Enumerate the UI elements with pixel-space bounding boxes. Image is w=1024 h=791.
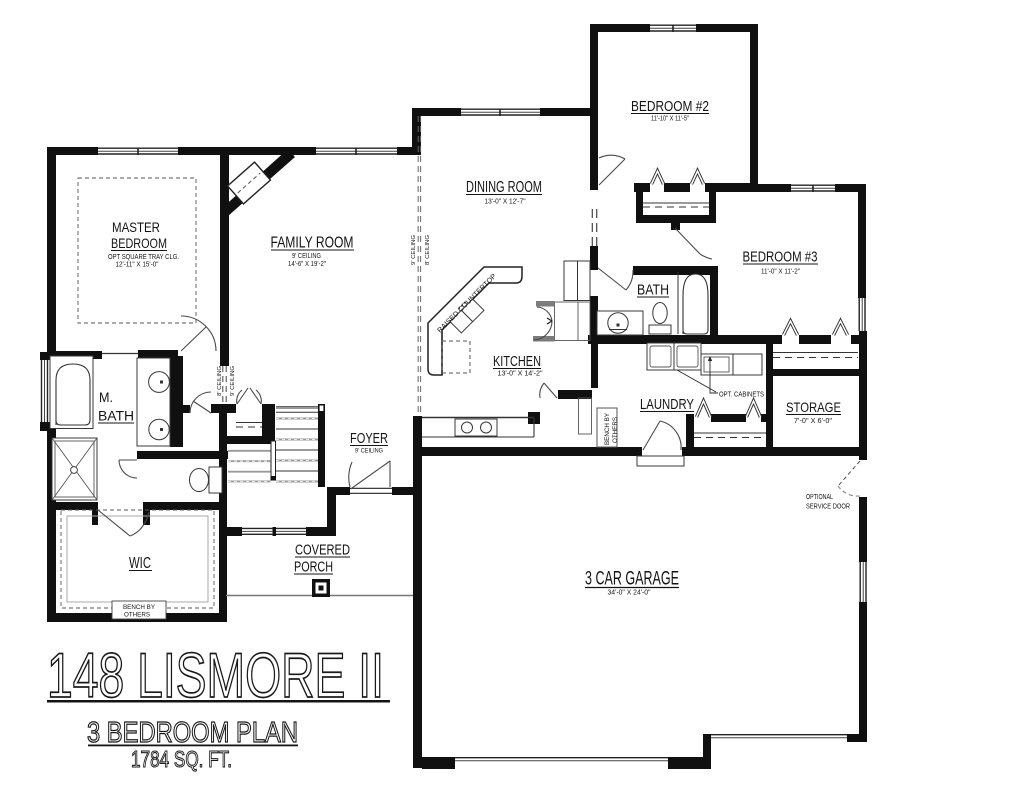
svg-text:9' CEILING: 9' CEILING [411,235,417,265]
svg-text:FOYER: FOYER [350,430,388,447]
svg-text:SERVICE DOOR: SERVICE DOOR [806,504,850,511]
svg-text:BATH: BATH [98,408,134,424]
svg-text:BENCH BY: BENCH BY [123,604,155,611]
svg-text:MASTER: MASTER [112,219,160,235]
svg-text:3 CAR GARAGE: 3 CAR GARAGE [585,569,679,590]
svg-text:DINING ROOM: DINING ROOM [466,179,542,196]
svg-text:3 BEDROOM PLAN: 3 BEDROOM PLAN [87,717,298,749]
svg-text:OPT. CABINETS: OPT. CABINETS [719,392,764,399]
svg-text:FAMILY ROOM: FAMILY ROOM [271,235,354,252]
svg-text:STORAGE: STORAGE [786,399,841,415]
svg-text:BEDROOM #2: BEDROOM #2 [631,98,709,115]
svg-text:OPTIONAL: OPTIONAL [806,494,833,501]
svg-text:OTHERS: OTHERS [612,417,619,443]
svg-text:14'-6" X 19'-2": 14'-6" X 19'-2" [288,259,326,268]
svg-text:BENCH BY: BENCH BY [604,413,611,445]
svg-text:11'-0" X 11'-2": 11'-0" X 11'-2" [761,269,800,276]
svg-text:PORCH: PORCH [294,560,333,576]
svg-text:13'-0" X 14'-2": 13'-0" X 14'-2" [498,371,544,378]
svg-text:9' CEILING: 9' CEILING [355,448,383,455]
svg-text:7'-0" X 6'-0": 7'-0" X 6'-0" [794,418,833,425]
svg-text:11'-10" X 11'-5": 11'-10" X 11'-5" [651,116,689,123]
svg-text:BEDROOM: BEDROOM [111,235,167,251]
svg-text:9' CEILING: 9' CEILING [230,366,236,396]
svg-text:OPT SQUARE TRAY CLG.: OPT SQUARE TRAY CLG. [108,254,179,261]
svg-text:8' CEILING: 8' CEILING [425,235,431,265]
svg-text:12'-11" X 15'-0": 12'-11" X 15'-0" [116,262,159,269]
svg-text:KITCHEN: KITCHEN [493,354,541,370]
svg-text:BEDROOM #3: BEDROOM #3 [743,249,818,266]
svg-text:LAUNDRY: LAUNDRY [640,396,694,413]
svg-text:BATH: BATH [637,282,669,299]
svg-text:WIC: WIC [129,555,151,572]
svg-text:13'-0" X 12'-7": 13'-0" X 12'-7" [485,197,526,206]
svg-text:COVERED: COVERED [295,543,350,559]
svg-text:34'-0" X 24'-0": 34'-0" X 24'-0" [608,590,651,597]
svg-text:OTHERS: OTHERS [124,612,150,619]
svg-text:1784 SQ. FT.: 1784 SQ. FT. [131,746,232,772]
svg-text:M.: M. [99,389,113,405]
svg-text:8' CEILING: 8' CEILING [217,366,223,396]
